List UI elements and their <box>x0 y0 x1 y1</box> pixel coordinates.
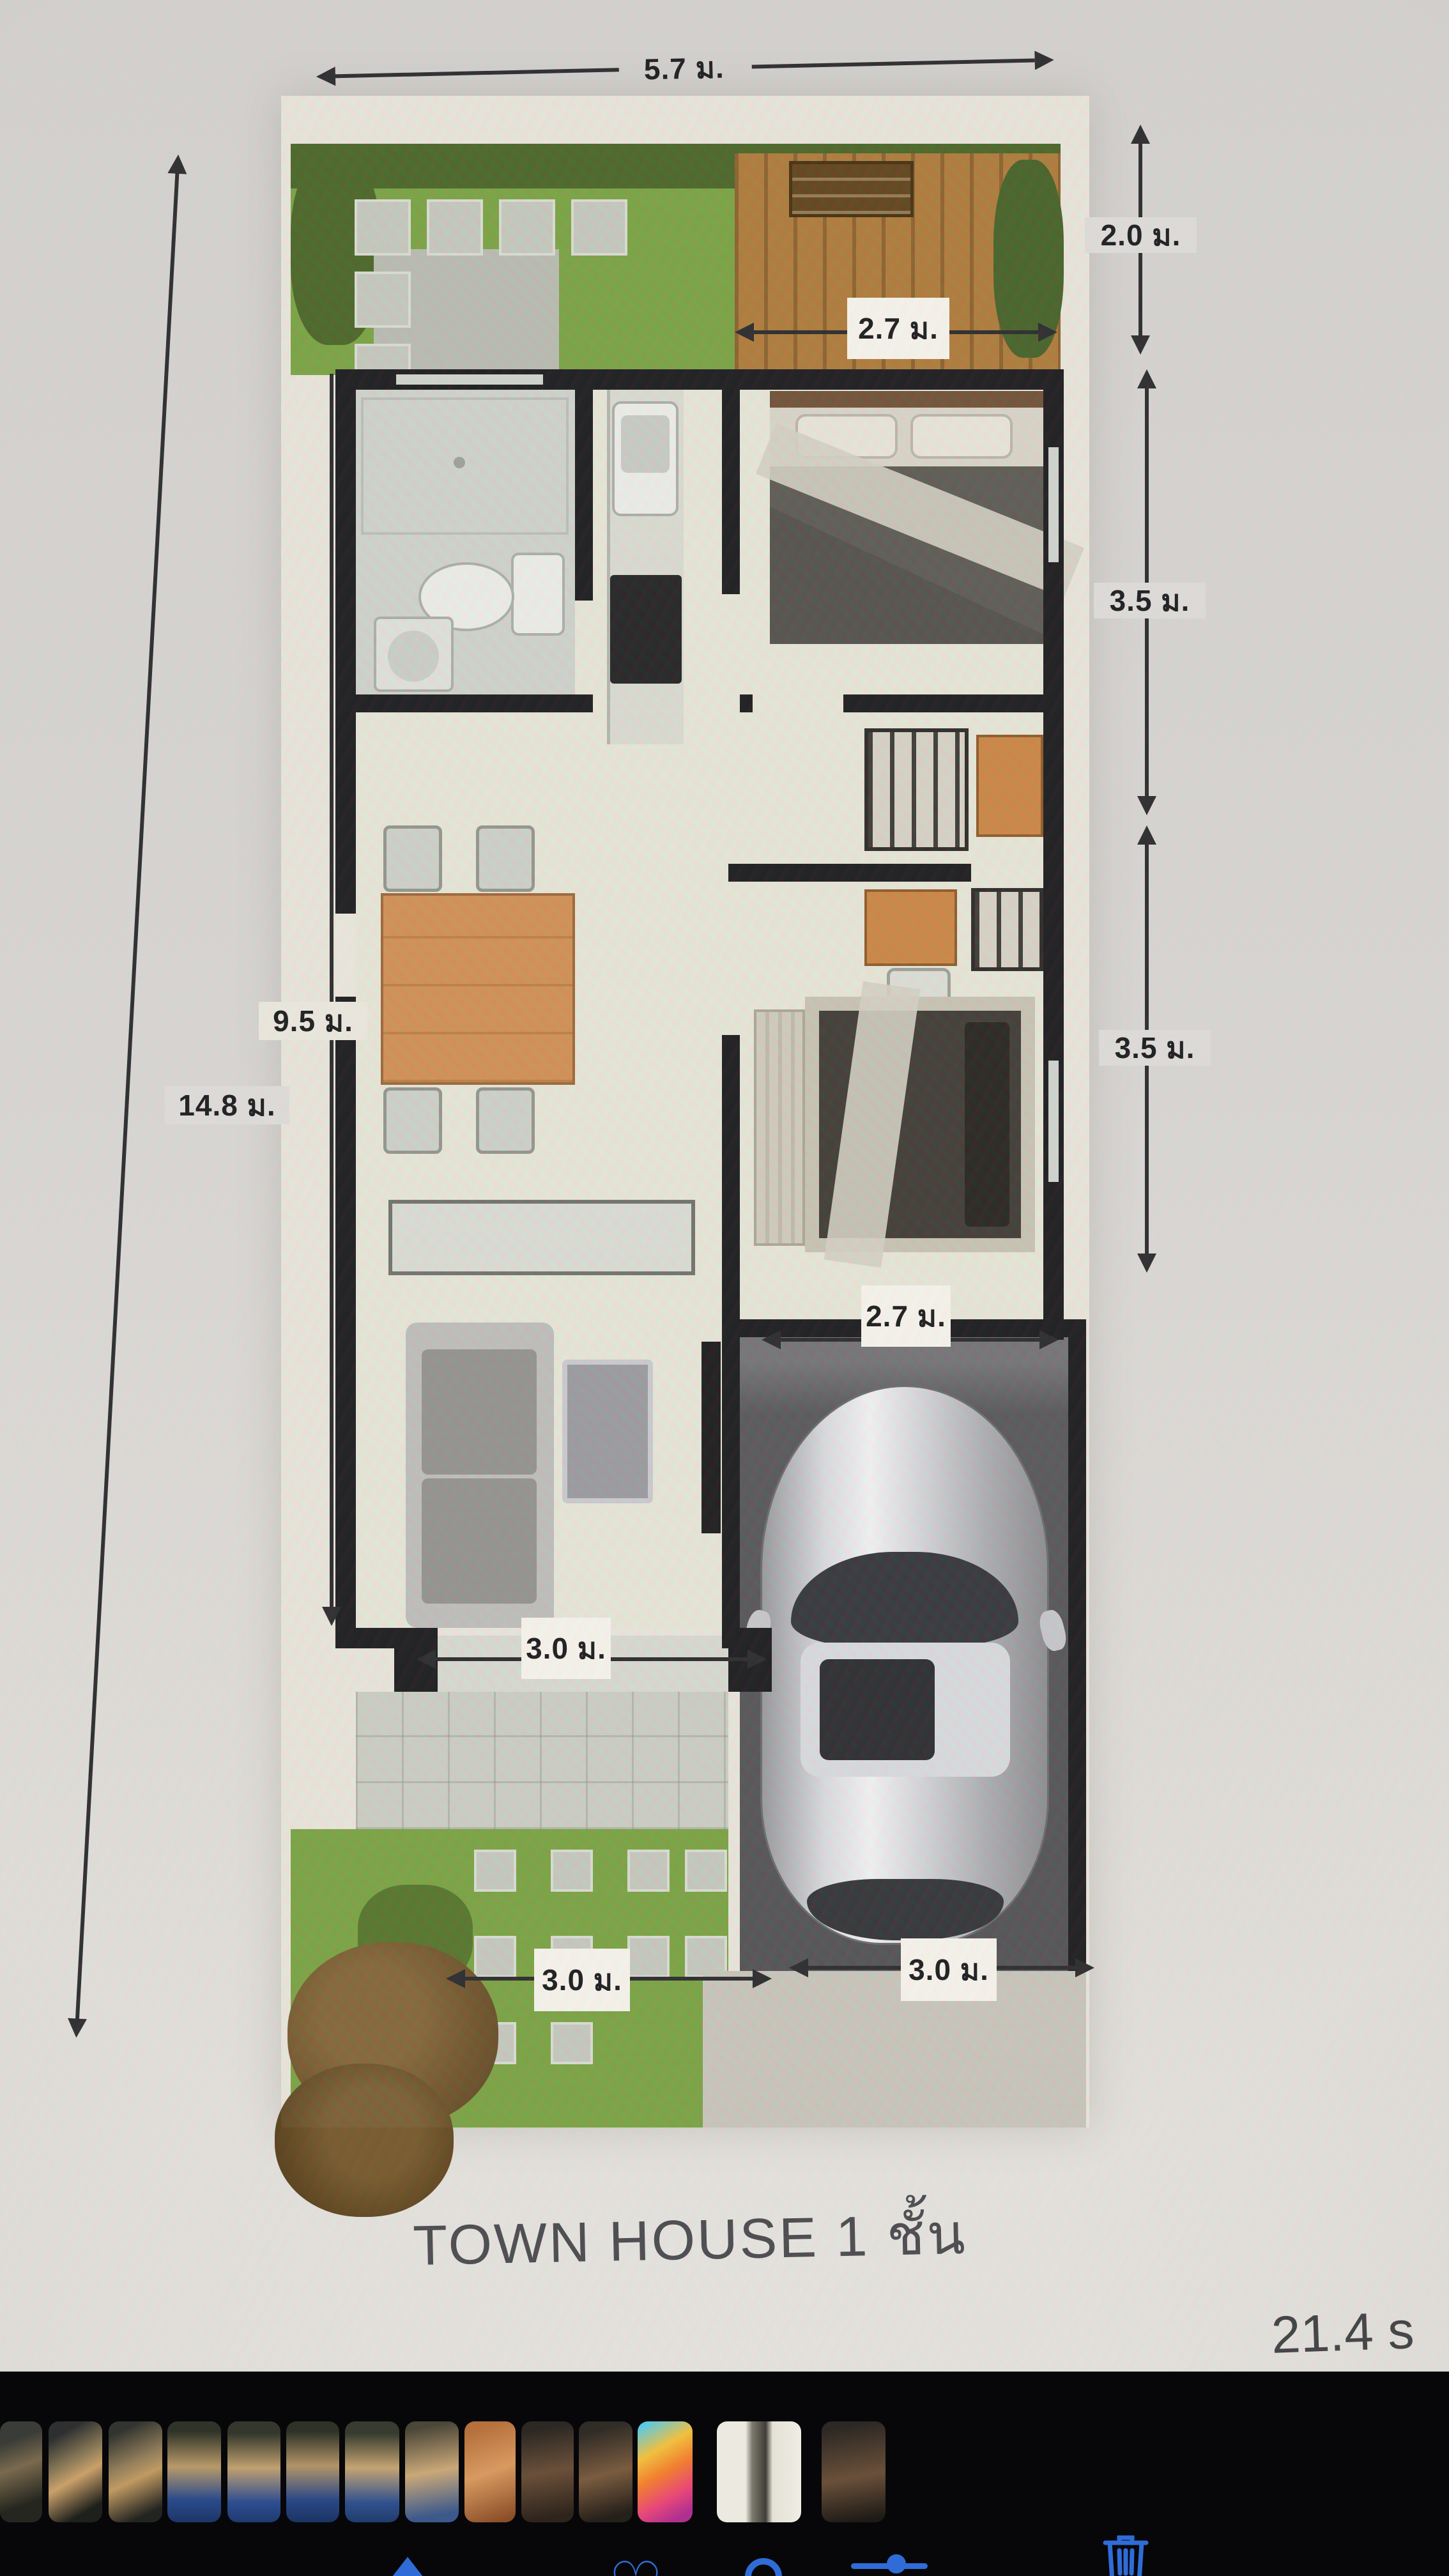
bedroom-2-rug <box>754 1009 805 1246</box>
wall <box>843 694 1064 712</box>
dining-table <box>381 893 575 1085</box>
wall <box>335 694 593 712</box>
dim-label: 3.5 ม. <box>1099 1030 1211 1066</box>
wall <box>722 1035 740 1648</box>
pillow <box>965 1022 1009 1227</box>
dining-chair <box>476 825 535 892</box>
floor-plan-image <box>281 96 1089 2127</box>
trash-icon[interactable] <box>1100 2531 1151 2576</box>
bedroom-2-bed <box>805 997 1035 1252</box>
sofa-cushion <box>422 1349 537 1475</box>
wall <box>722 390 740 594</box>
paver <box>499 199 555 256</box>
paver <box>474 1850 516 1892</box>
adjust-sliders-icon[interactable] <box>851 2554 928 2576</box>
bedroom-1-bed <box>770 391 1043 644</box>
dim-label: 3.0 ม. <box>534 1949 630 2011</box>
coffee-table <box>562 1360 653 1503</box>
tree <box>275 2064 454 2217</box>
photographed-screen: 5.7 ม. 14.8 ม. 9.5 ม. 2.0 ม. 3.5 ม. 3.5 … <box>0 0 1449 2576</box>
dim-label: 2.7 ม. <box>861 1285 951 1347</box>
area-text: 21.4 s <box>1270 2294 1449 2371</box>
dining-chair <box>383 825 442 892</box>
window <box>1048 1061 1059 1182</box>
dim-label: 3.5 ม. <box>1094 583 1206 618</box>
paver <box>685 1850 727 1892</box>
paver <box>355 272 411 328</box>
deck-table <box>789 161 914 217</box>
dim-top-width: 5.7 ม. <box>316 42 1054 97</box>
paver <box>427 199 483 256</box>
wardrobe <box>864 728 969 851</box>
plan-title: TOWN HOUSE 1 ชั้น <box>408 2192 972 2287</box>
driveway <box>703 1971 1086 2127</box>
paver <box>571 199 627 256</box>
dim-label: 5.7 ม. <box>616 49 752 88</box>
sideboard <box>388 1200 695 1275</box>
kitchen-sink-basin <box>621 415 670 473</box>
dim-label: 9.5 ม. <box>259 1002 367 1040</box>
dim-label: 3.0 ม. <box>521 1618 611 1679</box>
headboard <box>770 391 1043 408</box>
shower-drain <box>454 457 465 468</box>
dim-label: 3.0 ม. <box>901 1938 997 2001</box>
wardrobe <box>971 888 1043 971</box>
dining-chair <box>476 1087 535 1154</box>
photos-toolbar: ♡ <box>0 2372 1449 2576</box>
pillow <box>910 414 1013 459</box>
tv <box>701 1342 721 1533</box>
car-sunroof <box>820 1659 935 1760</box>
dim-label: 2.0 ม. <box>1085 217 1197 253</box>
car <box>760 1385 1049 1945</box>
dim-label: 2.7 ม. <box>847 298 949 359</box>
dresser <box>864 889 957 966</box>
sofa-cushion <box>422 1478 537 1604</box>
walkway <box>356 1692 728 1829</box>
sliding-door <box>396 374 543 385</box>
photos-bottom-bar: ♡ <box>0 2372 1449 2576</box>
dresser <box>976 735 1043 837</box>
paver <box>551 1850 593 1892</box>
car-rear-window <box>807 1879 1004 1940</box>
car-windshield <box>791 1552 1018 1648</box>
dining-chair <box>383 1087 442 1154</box>
favorite-heart-icon[interactable]: ♡ <box>608 2554 663 2576</box>
wall <box>728 864 971 882</box>
shower-area <box>361 397 569 535</box>
wall <box>575 390 593 601</box>
window <box>1048 447 1059 562</box>
toilet-tank <box>511 553 565 636</box>
paver <box>355 199 411 256</box>
sink-basin <box>388 631 439 682</box>
info-icon[interactable] <box>745 2558 782 2576</box>
paver <box>627 1850 670 1892</box>
stove <box>610 575 682 684</box>
paver <box>551 2022 593 2064</box>
share-icon[interactable] <box>390 2557 425 2576</box>
wall <box>1068 1319 1086 1971</box>
dim-label: 14.8 ม. <box>165 1086 289 1124</box>
wall <box>740 694 753 712</box>
sofa <box>406 1322 554 1628</box>
